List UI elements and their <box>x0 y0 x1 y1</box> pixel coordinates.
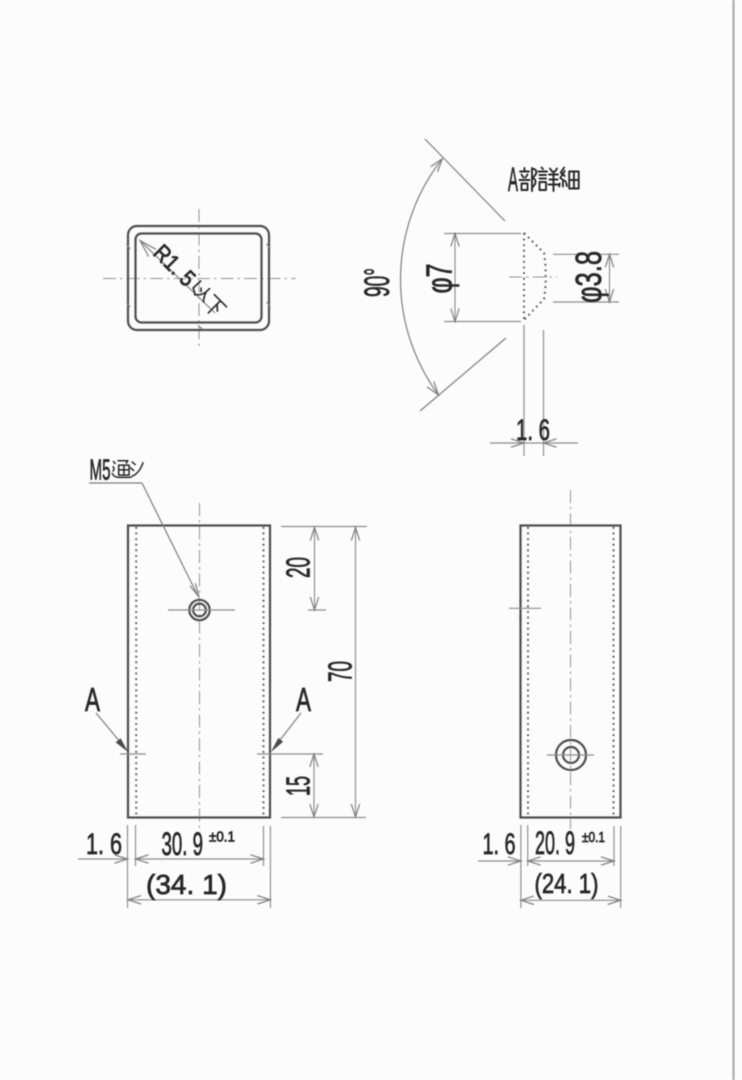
svg-text:A: A <box>508 161 518 199</box>
svg-text:20: 20 <box>280 557 317 578</box>
svg-text:70: 70 <box>322 661 359 682</box>
svg-text:A: A <box>296 681 311 718</box>
svg-text:±0.1: ±0.1 <box>209 829 235 846</box>
svg-text:(24. 1): (24. 1) <box>535 868 599 899</box>
svg-text:15: 15 <box>280 776 317 796</box>
svg-text:φ7: φ7 <box>419 264 460 294</box>
svg-text:(34. 1): (34. 1) <box>146 869 227 900</box>
svg-text:A: A <box>85 681 100 718</box>
svg-text:1. 6: 1. 6 <box>86 828 122 861</box>
svg-text:1. 6: 1. 6 <box>483 828 516 861</box>
svg-text:φ3.8: φ3.8 <box>568 251 609 303</box>
svg-text:M5: M5 <box>90 455 111 487</box>
svg-text:30. 9: 30. 9 <box>162 826 204 862</box>
svg-text:90°: 90° <box>358 268 397 297</box>
svg-text:20. 9: 20. 9 <box>535 825 575 861</box>
svg-text:R1. 5: R1. 5 <box>149 239 201 291</box>
svg-text:±0.1: ±0.1 <box>582 829 605 846</box>
svg-text:1. 6: 1. 6 <box>516 414 550 447</box>
